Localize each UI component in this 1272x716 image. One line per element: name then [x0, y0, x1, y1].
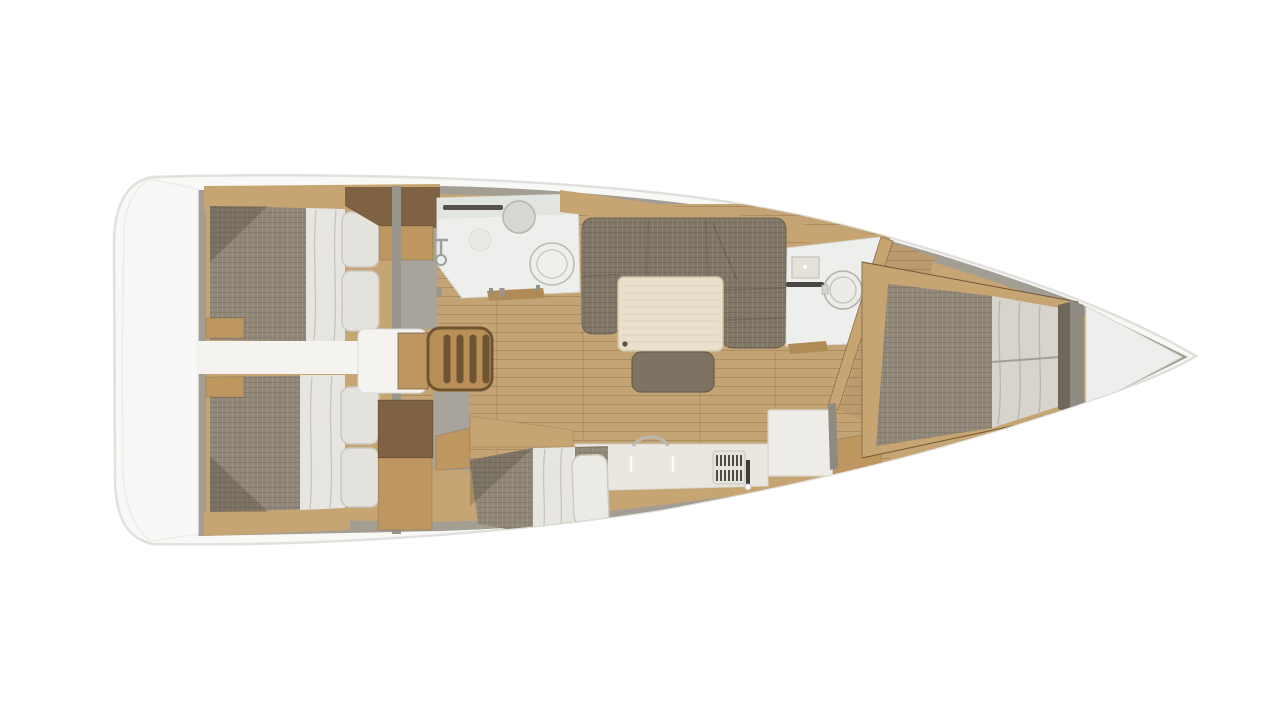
interior	[122, 179, 1188, 541]
toilet-hinge	[822, 285, 828, 294]
walkway	[196, 341, 362, 374]
washbasin	[503, 201, 535, 233]
locker-cabinet	[378, 458, 432, 530]
step-column	[398, 333, 428, 389]
aft-head	[434, 194, 580, 301]
vent-slot	[786, 282, 824, 287]
bow-gunwale	[1070, 300, 1084, 414]
aft-cabin-starboard	[206, 375, 379, 512]
step-block	[206, 318, 244, 338]
headboard-strip	[1058, 302, 1070, 413]
nightstand	[379, 226, 433, 260]
bench-seat	[632, 352, 714, 392]
mattress-texture	[876, 284, 992, 446]
yacht-floorplan-image	[0, 0, 1272, 716]
table-leg	[622, 341, 627, 346]
fridge-island	[768, 410, 833, 476]
pillow	[572, 454, 609, 525]
anchor-locker	[1086, 306, 1182, 408]
vent-slot	[443, 205, 503, 210]
oven-handle	[746, 460, 750, 486]
duvet	[306, 208, 345, 342]
locker-panel	[378, 400, 433, 458]
corner-block	[436, 428, 470, 470]
pillow	[342, 271, 379, 331]
shower-drain	[469, 229, 491, 251]
duvet	[300, 375, 345, 510]
oven-knob	[745, 484, 751, 490]
transom-area	[122, 179, 198, 541]
step-block	[206, 377, 244, 397]
pillow	[341, 448, 379, 507]
duvet	[533, 447, 575, 535]
yacht-floorplan	[0, 0, 1272, 716]
basin-drain	[803, 265, 807, 269]
pillow	[341, 387, 379, 444]
